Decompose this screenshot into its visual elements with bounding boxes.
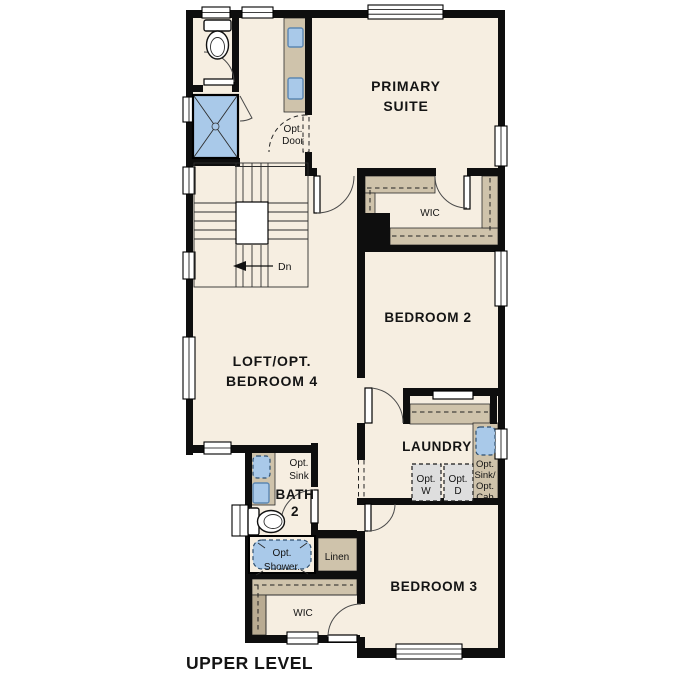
opt-washer-label: Opt. bbox=[417, 474, 436, 485]
laundry-label: LAUNDRY bbox=[402, 439, 472, 454]
stair-void bbox=[236, 202, 268, 244]
primary-wic-shelf-left bbox=[365, 193, 375, 215]
bath2-label: 2 bbox=[291, 504, 299, 519]
window bbox=[183, 252, 195, 279]
window bbox=[183, 337, 195, 399]
wic3-shelf-top bbox=[252, 579, 357, 595]
window bbox=[232, 505, 248, 536]
primary-wic-label: WIC bbox=[420, 208, 439, 219]
opt-dryer-label: Opt. bbox=[449, 474, 468, 485]
wic3-label: WIC bbox=[293, 608, 312, 619]
primary-wic-shelf-top bbox=[365, 176, 435, 193]
sink-icon bbox=[288, 78, 303, 99]
page-title: UPPER LEVEL bbox=[186, 653, 313, 673]
window bbox=[242, 7, 273, 18]
loft-label: BEDROOM 4 bbox=[226, 373, 318, 389]
primary-suite-label: PRIMARY bbox=[371, 78, 441, 94]
opt-sink-label: Opt. bbox=[290, 458, 309, 469]
opt-dryer-label: D bbox=[454, 486, 461, 497]
window bbox=[204, 442, 231, 454]
wall-exterior-right bbox=[498, 10, 505, 658]
opt-door-label: Door bbox=[282, 136, 304, 147]
window bbox=[183, 167, 195, 194]
wall-exterior-top bbox=[186, 10, 505, 18]
toilet-icon bbox=[204, 20, 231, 59]
floor-plan-page: Dn bbox=[0, 0, 687, 687]
window bbox=[396, 644, 462, 659]
opt-washer-label: W bbox=[421, 486, 431, 497]
window bbox=[368, 5, 443, 19]
opt-sink-label: Sink bbox=[289, 471, 309, 482]
stair-direction-label: Dn bbox=[278, 261, 292, 273]
opt-sink-cab-label: Cab bbox=[476, 492, 493, 503]
bath2-label: BATH bbox=[276, 487, 315, 502]
window bbox=[202, 7, 230, 18]
laundry-shelf bbox=[410, 404, 490, 424]
opt-sink-cab-label: Opt. bbox=[476, 459, 494, 470]
optional-sink-icon bbox=[253, 456, 270, 478]
loft-label: LOFT/OPT. bbox=[233, 353, 312, 369]
linen-label: Linen bbox=[325, 552, 349, 563]
window bbox=[495, 251, 507, 306]
toilet-icon bbox=[248, 508, 285, 535]
opt-shower-label: Shower. bbox=[264, 562, 300, 573]
wall-primary-bath-right bbox=[305, 18, 312, 115]
structural-column bbox=[357, 213, 390, 247]
opt-sink-cab-label: Opt. bbox=[476, 481, 494, 492]
primary-suite-label: SUITE bbox=[383, 98, 428, 114]
optional-laundry-sink-icon bbox=[476, 427, 495, 455]
opt-door-label: Opt. bbox=[284, 124, 303, 135]
sink-icon bbox=[288, 28, 303, 47]
window bbox=[287, 632, 318, 644]
window bbox=[495, 429, 507, 459]
wic3-shelf-left bbox=[252, 595, 266, 635]
opt-shower-label: Opt. bbox=[273, 548, 292, 559]
bedroom3-label: BEDROOM 3 bbox=[390, 579, 477, 594]
wall-hall-bottom bbox=[311, 530, 357, 538]
bedroom2-closet-door bbox=[433, 391, 473, 399]
bedroom2-label: BEDROOM 2 bbox=[384, 310, 471, 325]
opt-sink-cab-label: Sink/ bbox=[474, 470, 495, 481]
floor-plan-drawing: Dn bbox=[0, 0, 687, 687]
sink-icon bbox=[253, 483, 269, 503]
window bbox=[495, 126, 507, 166]
